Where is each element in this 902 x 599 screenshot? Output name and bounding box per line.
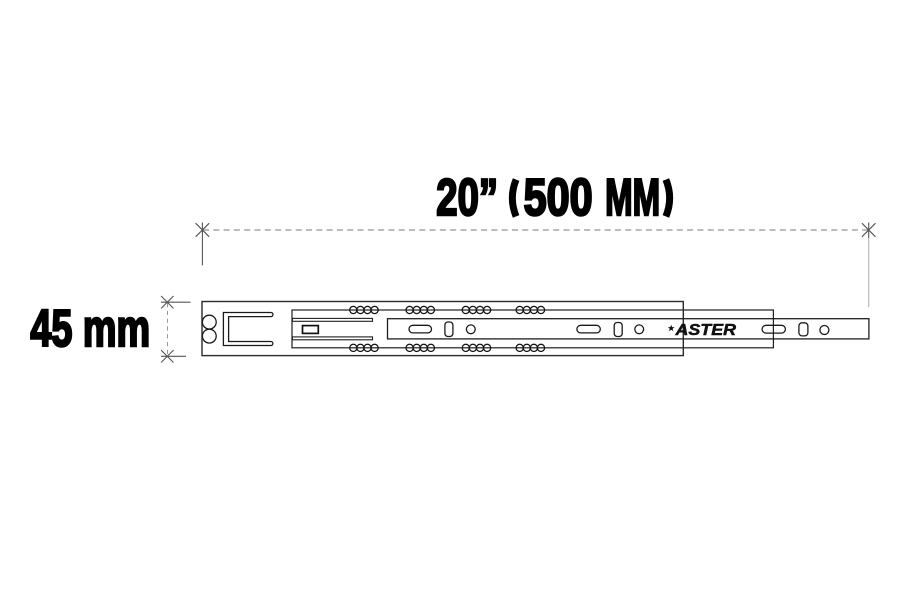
- svg-text:500: 500: [524, 169, 593, 227]
- svg-text:MM: MM: [605, 169, 660, 227]
- svg-text:20”: 20”: [436, 169, 498, 227]
- svg-text:ASTER: ASTER: [674, 322, 736, 339]
- svg-text:45 mm: 45 mm: [30, 299, 150, 357]
